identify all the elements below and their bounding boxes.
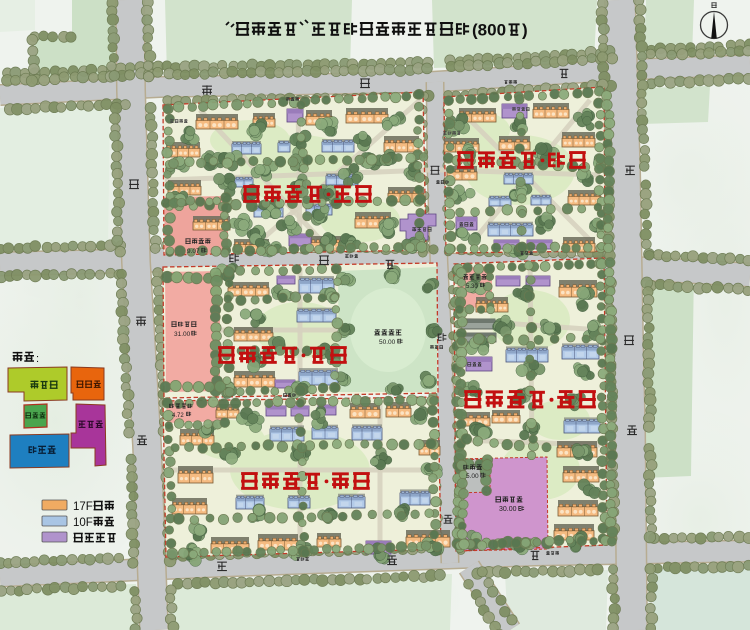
svg-text:5.00: 5.00 [466, 473, 479, 480]
svg-text:9.07: 9.07 [187, 248, 200, 255]
svg-text:): ) [522, 21, 528, 40]
svg-text:5.30: 5.30 [466, 284, 478, 290]
svg-text:31.00: 31.00 [174, 331, 191, 338]
svg-text:17F: 17F [73, 501, 93, 513]
svg-text:4.72: 4.72 [172, 413, 184, 419]
svg-text:10F: 10F [73, 517, 93, 529]
svg-text::: : [36, 353, 39, 365]
svg-text:50.00: 50.00 [379, 339, 396, 346]
svg-text:30.00: 30.00 [499, 506, 517, 513]
svg-text:(800: (800 [472, 21, 506, 40]
